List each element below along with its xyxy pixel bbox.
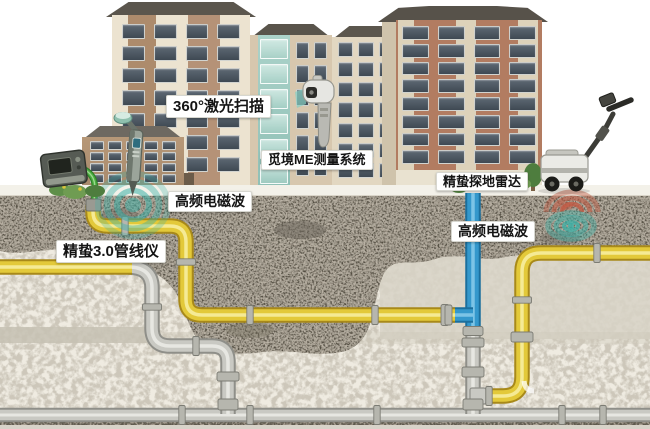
label-em-wave-right: 高频电磁波 <box>451 221 535 242</box>
me-measurement-robot <box>295 76 334 148</box>
soil-gray-streak <box>0 327 158 343</box>
gpr-cart <box>538 92 631 194</box>
scene-overlay <box>0 0 650 429</box>
pipeline-detection-illustration: 360°激光扫描 觅境ME测量系统 精蛰探地雷达 高频电磁波 高频电磁波 精蛰3… <box>0 0 650 429</box>
label-gpr: 精蛰探地雷达 <box>436 172 528 191</box>
label-me-system: 觅境ME测量系统 <box>261 150 373 170</box>
label-locator: 精蛰3.0管线仪 <box>56 240 166 263</box>
label-laser-scan: 360°激光扫描 <box>166 95 271 118</box>
wand-display <box>132 138 141 149</box>
em-wave-symbol-right <box>546 192 598 239</box>
label-em-wave-left: 高频电磁波 <box>168 191 252 212</box>
signal-transmitter <box>40 150 88 188</box>
